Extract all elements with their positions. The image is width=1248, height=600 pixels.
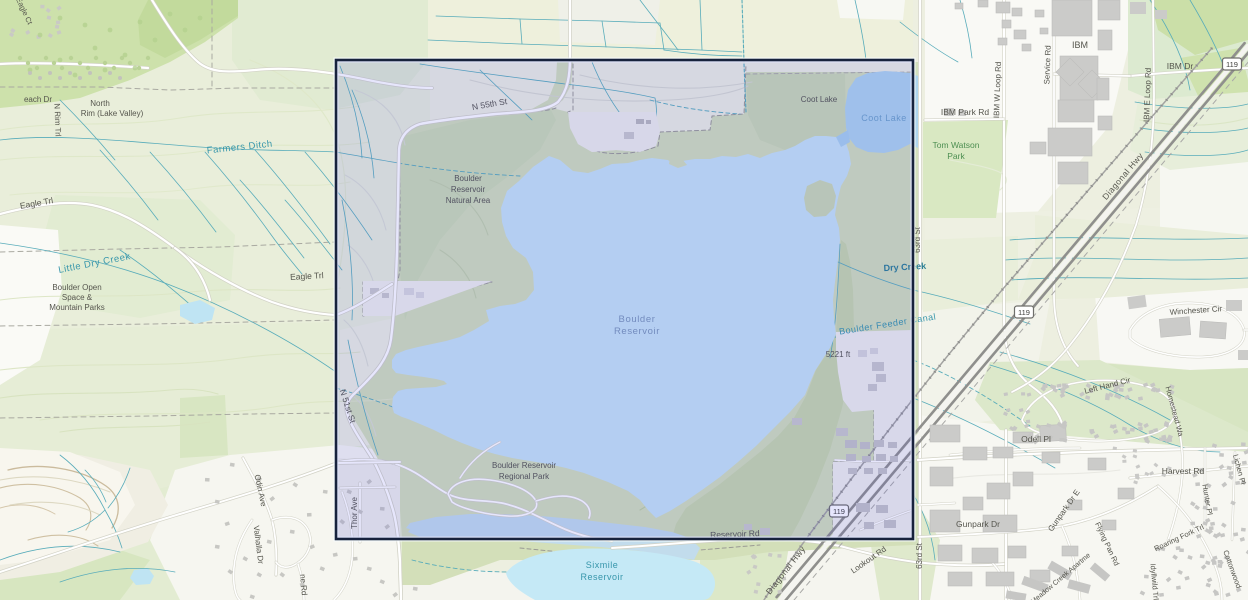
svg-text:IBM Park Rd: IBM Park Rd: [941, 107, 989, 117]
svg-text:Boulder Open: Boulder Open: [52, 283, 101, 292]
svg-text:Park: Park: [947, 151, 965, 161]
svg-text:Odell Pl: Odell Pl: [1021, 434, 1051, 444]
svg-text:119: 119: [1226, 60, 1238, 69]
svg-text:Rim (Lake Valley): Rim (Lake Valley): [81, 109, 144, 118]
svg-text:North: North: [90, 99, 110, 108]
svg-text:ne Rd: ne Rd: [298, 574, 309, 596]
svg-text:Space &: Space &: [62, 293, 93, 302]
svg-text:each Dr: each Dr: [24, 95, 52, 104]
svg-text:Service Rd: Service Rd: [1042, 45, 1052, 84]
svg-text:Harvest Rd: Harvest Rd: [1162, 466, 1205, 476]
svg-text:Gunpark Dr: Gunpark Dr: [956, 519, 1000, 529]
svg-text:Reservoir: Reservoir: [580, 572, 623, 582]
svg-text:Eagle Trl: Eagle Trl: [290, 270, 324, 282]
svg-text:Sixmile: Sixmile: [586, 560, 619, 570]
svg-text:IBM: IBM: [1072, 40, 1088, 50]
svg-text:119: 119: [1018, 308, 1030, 317]
svg-text:IBM Dr: IBM Dr: [1167, 61, 1194, 71]
svg-text:N Rim Trl: N Rim Trl: [52, 103, 62, 137]
svg-text:Tom Watson: Tom Watson: [933, 140, 980, 150]
svg-text:IBM E Loop Rd: IBM E Loop Rd: [1142, 68, 1153, 123]
svg-text:Mountain Parks: Mountain Parks: [49, 303, 105, 312]
svg-text:63rd St: 63rd St: [915, 542, 924, 569]
